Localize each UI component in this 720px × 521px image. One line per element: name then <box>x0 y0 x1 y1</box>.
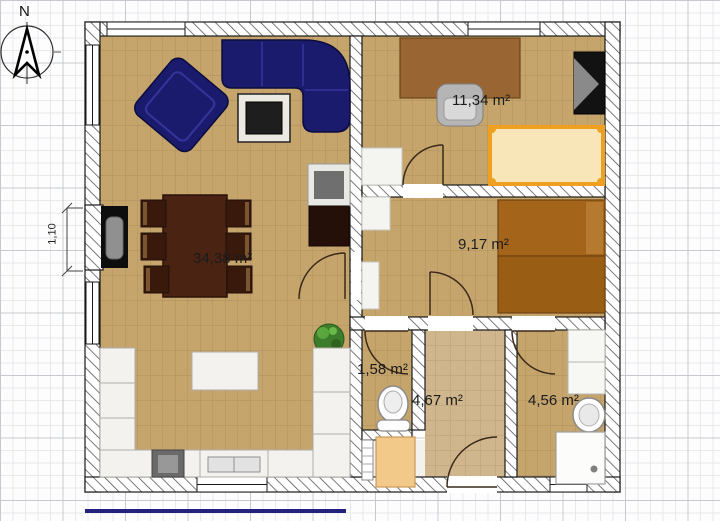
kitchen-counter-bottom-b[interactable] <box>184 450 200 477</box>
hall-floor[interactable] <box>425 330 505 477</box>
dining-table[interactable] <box>163 195 227 297</box>
wall-bottom[interactable] <box>85 477 620 492</box>
wall-bedrooms-divider[interactable] <box>362 185 605 197</box>
kitchen-counter-bottom-c[interactable] <box>268 450 313 477</box>
floor-plan-drawing <box>0 0 720 521</box>
hall-furniture <box>362 437 415 487</box>
window-left-upper[interactable] <box>86 45 99 125</box>
wall-right[interactable] <box>605 22 620 492</box>
floor-plan-canvas[interactable]: 34,38 m² 11,34 m² 9,17 m² 1,58 m² 4,67 m… <box>0 0 720 521</box>
dimension-line[interactable] <box>62 203 83 276</box>
north-compass[interactable] <box>1 22 61 84</box>
window-top-right[interactable] <box>468 22 540 36</box>
bed-orange[interactable] <box>488 125 605 186</box>
wardrobe-white-b[interactable] <box>362 262 379 309</box>
opening-bedroom-large <box>403 184 443 198</box>
fireplace[interactable] <box>101 206 128 268</box>
dresser-white[interactable] <box>362 148 402 185</box>
bed-brown-1[interactable] <box>498 200 605 256</box>
bathroom-cabinet[interactable] <box>568 330 605 394</box>
opening-wc <box>365 316 408 331</box>
tv[interactable] <box>308 164 350 206</box>
coffee-table[interactable] <box>238 94 290 142</box>
kitchen-island[interactable] <box>192 352 258 390</box>
window-top-left[interactable] <box>107 22 185 36</box>
window-kitchen[interactable] <box>197 477 267 492</box>
tv-stand[interactable] <box>309 206 349 246</box>
wall-wc-hall[interactable] <box>412 330 425 430</box>
dimension-label: 1,10 <box>47 223 59 244</box>
bathroom-sink[interactable] <box>573 398 605 432</box>
opening-bathroom <box>512 316 555 331</box>
sink <box>208 457 260 472</box>
window-left-lower[interactable] <box>86 282 99 344</box>
wc-fixtures <box>377 386 410 431</box>
compass-north-label: N <box>19 3 30 20</box>
shower[interactable] <box>556 432 605 484</box>
wardrobe-dark[interactable] <box>574 52 605 114</box>
wall-hall-bathroom[interactable] <box>505 330 517 477</box>
opening-exterior-door <box>447 476 497 493</box>
kitchen-counter-right[interactable] <box>313 348 350 477</box>
bed-pillow <box>586 202 603 254</box>
radiator[interactable] <box>362 440 373 480</box>
opening-living <box>351 252 361 300</box>
hall-dresser-orange[interactable] <box>376 437 415 487</box>
opening-bedroom-small <box>428 316 473 331</box>
shower-drain <box>591 466 598 473</box>
chimney-block[interactable] <box>85 205 103 270</box>
kitchen-counter-bottom-a[interactable] <box>100 450 152 477</box>
toilet[interactable] <box>377 386 410 431</box>
bed-brown-2[interactable] <box>498 256 605 313</box>
bottom-blue-line[interactable] <box>85 509 346 513</box>
stove[interactable] <box>152 450 184 477</box>
tv-screen <box>314 171 344 199</box>
office-chair[interactable] <box>437 84 483 126</box>
kitchen-counter-left[interactable] <box>100 348 135 452</box>
wardrobe-white-a[interactable] <box>362 197 390 230</box>
